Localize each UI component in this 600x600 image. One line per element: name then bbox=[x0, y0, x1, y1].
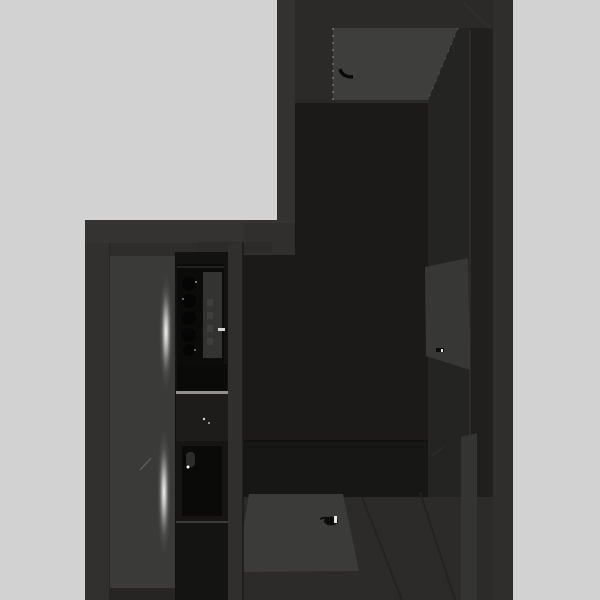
light-flare-lower-core bbox=[162, 446, 166, 538]
kitchen-counter[interactable] bbox=[176, 394, 228, 441]
knob-4[interactable] bbox=[207, 338, 213, 345]
kitchen-sink[interactable] bbox=[176, 441, 228, 523]
counter-front-highlight bbox=[176, 391, 228, 394]
side-door-handle-sparkle bbox=[441, 349, 443, 352]
burner-3 bbox=[182, 311, 196, 325]
light-flare-upper-core bbox=[164, 290, 168, 374]
burner-5 bbox=[183, 344, 195, 356]
wall-right-outer-band bbox=[493, 0, 513, 600]
wall-top-section-left bbox=[277, 0, 295, 255]
cooktop-speck-3 bbox=[194, 349, 196, 351]
knob-1[interactable] bbox=[207, 299, 213, 306]
cooktop-speck-1 bbox=[195, 281, 197, 283]
render-viewport[interactable] bbox=[0, 0, 600, 600]
decor-item-sparkle bbox=[334, 516, 337, 523]
floor-dark-band bbox=[243, 441, 428, 497]
divider-wall bbox=[228, 243, 243, 600]
scene-canvas[interactable] bbox=[0, 0, 600, 600]
side-door-leaf[interactable] bbox=[425, 258, 470, 370]
wall-left-outer bbox=[85, 243, 110, 600]
kitchen-lower-cabinet bbox=[176, 523, 228, 600]
knob-2[interactable] bbox=[207, 312, 213, 319]
counter-speck-2 bbox=[208, 422, 210, 424]
burner-2 bbox=[182, 294, 196, 308]
cooktop-highlight-dash bbox=[218, 328, 225, 331]
wall-light-strip bbox=[461, 433, 477, 600]
faucet-sparkle bbox=[187, 466, 190, 469]
floor-rug[interactable] bbox=[236, 494, 359, 572]
side-door-open-right[interactable] bbox=[425, 258, 470, 370]
counter-speck-1 bbox=[203, 418, 205, 420]
sink-faucet[interactable] bbox=[186, 452, 195, 467]
cooktop-speck-2 bbox=[182, 298, 184, 300]
burner-1 bbox=[182, 277, 196, 291]
knob-3[interactable] bbox=[207, 325, 213, 332]
kitchen-cooktop[interactable] bbox=[177, 264, 225, 364]
kitchen-gap bbox=[177, 364, 227, 392]
burner-4 bbox=[182, 328, 196, 342]
sink-bottom-edge bbox=[176, 521, 228, 523]
